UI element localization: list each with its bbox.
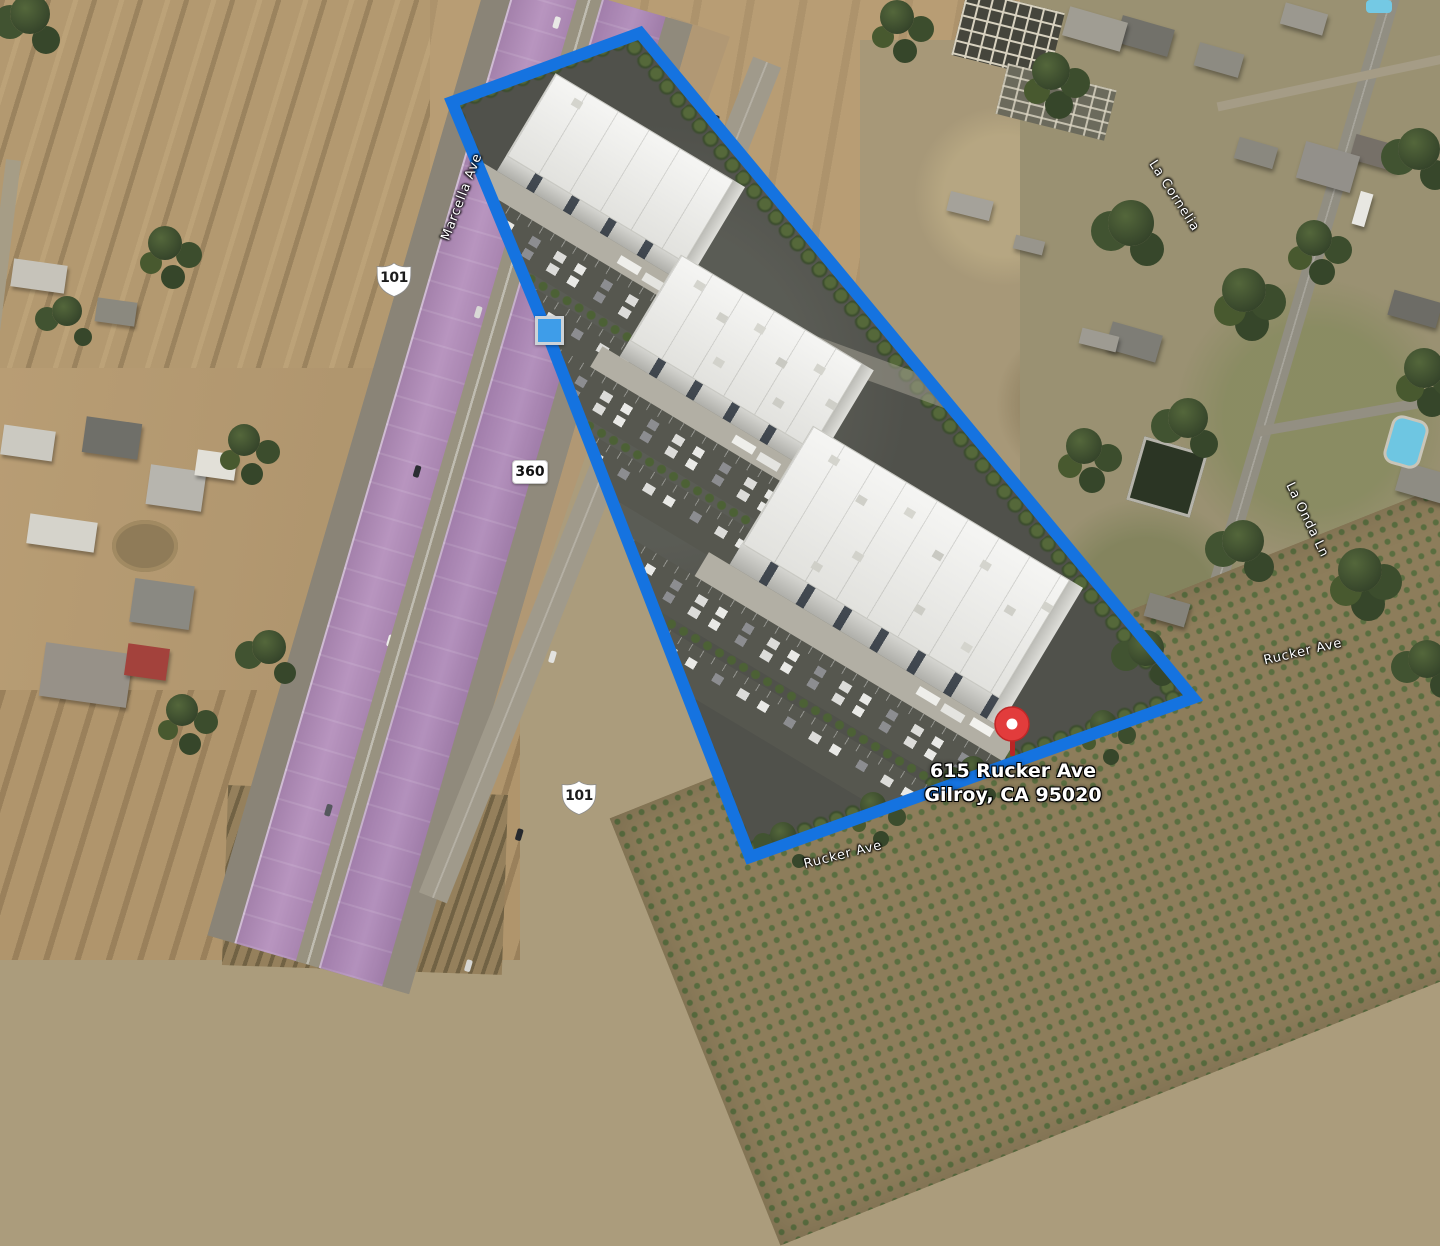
tree-cluster [148, 226, 182, 260]
tree-cluster [228, 424, 260, 456]
tree-cluster [1338, 548, 1382, 592]
tree-cluster [1408, 640, 1440, 678]
tree-cluster [1066, 428, 1102, 464]
tree-cluster [1128, 630, 1164, 666]
us-101-shield-north: 101 [374, 261, 414, 297]
red-roof-house [124, 643, 170, 681]
highway-vehicles [552, 16, 561, 29]
tree-cluster [166, 694, 198, 726]
rooftop-unit [828, 454, 841, 466]
tree-cluster [1222, 520, 1264, 562]
tree-cluster [1168, 398, 1208, 438]
dirt-arena [112, 520, 178, 572]
pin-address-line1: 615 Rucker Ave [863, 760, 1163, 782]
house-roof [194, 449, 237, 480]
tree-cluster [1296, 220, 1332, 256]
tree-row-rucker [1090, 710, 1116, 736]
pin-address-line2: Gilroy, CA 95020 [863, 784, 1163, 806]
house-roof [82, 416, 142, 459]
rooftop-unit [571, 98, 584, 110]
tree-cluster [1404, 348, 1440, 388]
boundary-vertex-handle[interactable] [535, 316, 564, 345]
swimming-pool [1366, 0, 1392, 13]
tree-cluster [52, 296, 82, 326]
exit-360-marker: 360 [512, 460, 548, 484]
tree-cluster [1398, 128, 1440, 170]
satellite-map[interactable]: { "map_labels": { "pin_line1": "615 Ruck… [0, 0, 1440, 960]
tree-cluster [880, 0, 914, 34]
tree-row-rucker [770, 822, 796, 848]
location-pin-icon [987, 702, 1037, 760]
shield-number: 101 [374, 270, 414, 286]
exit-number: 360 [513, 461, 547, 483]
rooftop-unit [693, 280, 706, 292]
us-101-shield-south: 101 [559, 779, 599, 815]
tree-cluster [252, 630, 286, 664]
shield-number: 101 [559, 788, 599, 804]
tree-cluster [1032, 52, 1070, 90]
tree-cluster [1222, 268, 1266, 312]
map-pin[interactable] [987, 702, 1037, 760]
house-roof [129, 578, 195, 630]
tree-cluster [1108, 200, 1154, 246]
